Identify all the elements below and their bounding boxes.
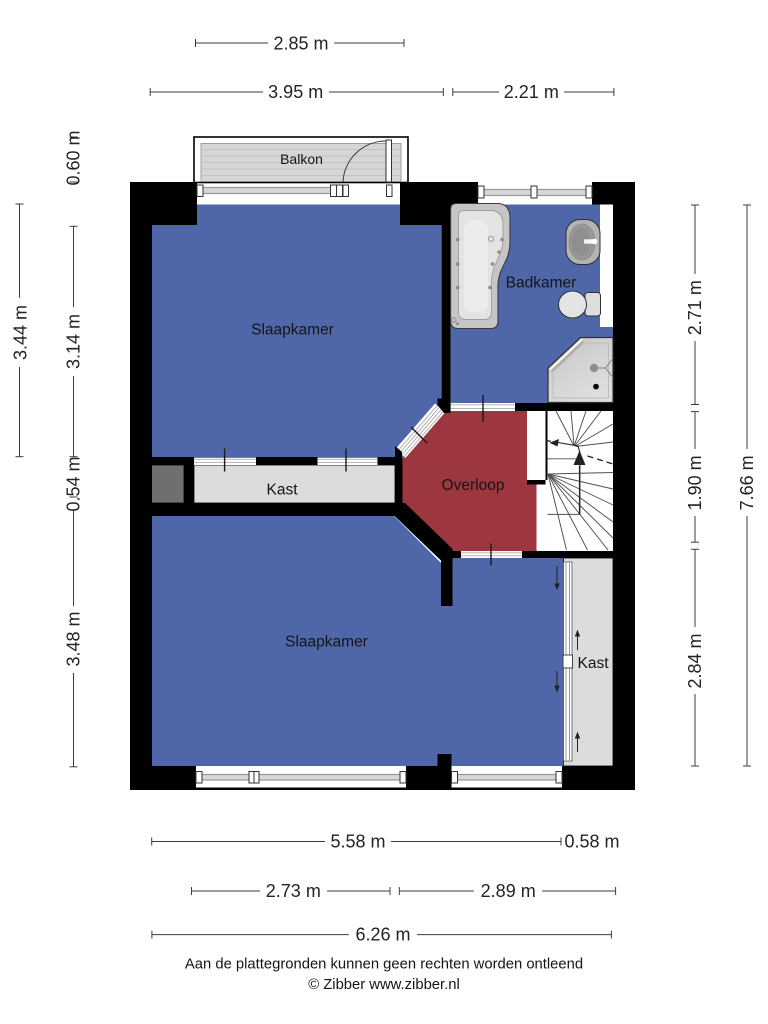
svg-text:0.60 m: 0.60 m (64, 130, 84, 185)
svg-text:0.58 m: 0.58 m (564, 832, 619, 852)
svg-text:5.58 m: 5.58 m (330, 832, 385, 852)
svg-text:Slaapkamer: Slaapkamer (251, 322, 334, 339)
svg-text:Slaapkamer: Slaapkamer (285, 634, 368, 651)
svg-text:Aan de plattegronden kunnen ge: Aan de plattegronden kunnen geen rechten… (185, 957, 583, 973)
svg-text:2.71 m: 2.71 m (685, 280, 705, 335)
svg-text:1.90 m: 1.90 m (685, 455, 705, 510)
svg-text:2.89 m: 2.89 m (481, 881, 536, 901)
svg-text:3.95 m: 3.95 m (268, 82, 323, 102)
svg-text:2.73 m: 2.73 m (266, 881, 321, 901)
svg-text:Badkamer: Badkamer (506, 275, 577, 292)
svg-text:3.48 m: 3.48 m (64, 611, 84, 666)
svg-text:Overloop: Overloop (442, 477, 505, 494)
svg-text:3.14 m: 3.14 m (64, 314, 84, 369)
svg-text:3.44 m: 3.44 m (11, 305, 31, 360)
svg-text:6.26 m: 6.26 m (355, 925, 410, 945)
svg-text:Kast: Kast (266, 482, 298, 499)
svg-text:Balkon: Balkon (280, 151, 323, 167)
svg-text:Kast: Kast (577, 655, 609, 672)
svg-text:2.84 m: 2.84 m (685, 633, 705, 688)
svg-text:2.21 m: 2.21 m (504, 82, 559, 102)
svg-text:0.54 m: 0.54 m (64, 456, 84, 511)
svg-text:7.66 m: 7.66 m (737, 455, 757, 510)
svg-text:2.85 m: 2.85 m (273, 33, 328, 53)
svg-text:© Zibber www.zibber.nl: © Zibber www.zibber.nl (308, 977, 460, 993)
